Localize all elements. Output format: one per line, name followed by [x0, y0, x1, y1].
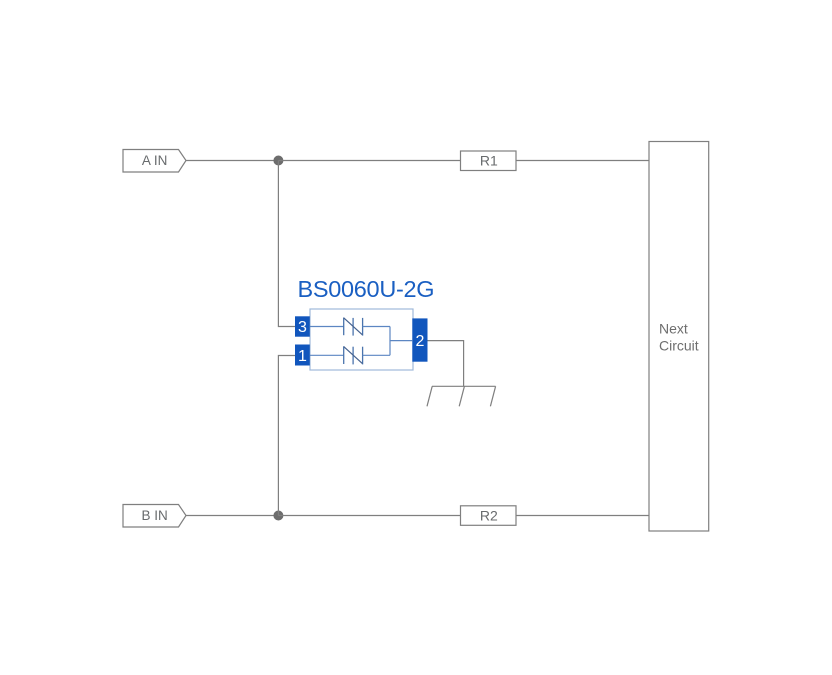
svg-text:3: 3: [298, 319, 307, 336]
svg-text:R1: R1: [480, 152, 498, 168]
svg-text:1: 1: [298, 348, 307, 365]
svg-text:A IN: A IN: [142, 153, 168, 168]
svg-text:R2: R2: [480, 507, 498, 523]
svg-text:B IN: B IN: [141, 508, 167, 523]
svg-text:2: 2: [415, 333, 424, 350]
svg-text:BS0060U-2G: BS0060U-2G: [298, 276, 435, 302]
svg-text:Next: Next: [659, 321, 688, 337]
svg-text:Circuit: Circuit: [659, 338, 699, 354]
